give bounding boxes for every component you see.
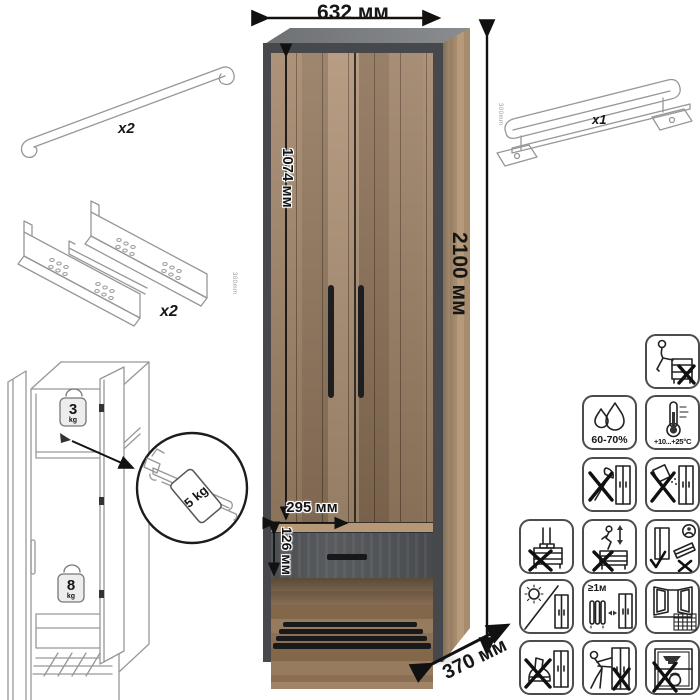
icon-heat-distance: ≥1м bbox=[582, 579, 637, 634]
icon-humidity: 60-70% bbox=[582, 395, 637, 450]
open-niche bbox=[271, 578, 433, 689]
right-door-handle bbox=[358, 285, 364, 398]
dim-inner-width-label: 295 мм bbox=[272, 499, 352, 516]
heat-distance-label: ≥1м bbox=[588, 583, 606, 594]
icon-assemble-upright bbox=[645, 519, 700, 574]
dim-height-label: 2100 мм bbox=[447, 232, 471, 316]
icon-no-sitting bbox=[645, 334, 700, 389]
drawer-load-unit: kg bbox=[58, 593, 84, 600]
shoe-rack-bar bbox=[279, 629, 423, 634]
wardrobe-side-panel bbox=[443, 28, 470, 662]
door-gap-line bbox=[354, 53, 356, 522]
dim-drawer-height-label: 126 мм bbox=[279, 527, 295, 575]
left-door-handle bbox=[328, 285, 334, 398]
shelf-load-value: 3 bbox=[60, 401, 86, 418]
icon-temperature: +10...+25°C bbox=[645, 395, 700, 450]
wireframe-wardrobe-sketch bbox=[8, 362, 247, 700]
icon-no-standing bbox=[519, 519, 574, 574]
temperature-label: +10...+25°C bbox=[647, 437, 698, 446]
humidity-label: 60-70% bbox=[584, 434, 635, 446]
drawer-slides-sketch bbox=[18, 201, 207, 326]
dim-width-label: 632 мм bbox=[278, 1, 428, 25]
slides-qty-label: x2 bbox=[160, 303, 178, 321]
furniture-dimension-diagram: 632 мм 2100 мм 1074 мм 295 мм 126 мм 370… bbox=[0, 0, 700, 700]
slides-size-label: 300mm bbox=[231, 272, 237, 295]
drawer-top-ledge bbox=[271, 522, 433, 532]
shoe-rack-bar bbox=[283, 622, 417, 627]
icon-no-heavy-objects bbox=[645, 640, 700, 695]
niche-floor bbox=[271, 682, 433, 689]
shoe-rack-bar bbox=[276, 636, 427, 641]
icon-no-moving-assembled bbox=[582, 640, 637, 695]
drawer-load-value: 8 bbox=[58, 577, 84, 594]
icon-no-direct-sunlight bbox=[519, 579, 574, 634]
icon-no-kicking bbox=[519, 640, 574, 695]
handle-rod-sketch bbox=[21, 67, 234, 157]
wardrobe-doors bbox=[271, 53, 433, 522]
icon-no-sharp-tools bbox=[582, 457, 637, 512]
rail-qty-label: x1 bbox=[592, 112, 606, 127]
rail-size-label: 300mm bbox=[497, 103, 503, 126]
shoe-rack-bar bbox=[273, 643, 431, 649]
handle-qty-label: x2 bbox=[118, 120, 135, 137]
shelf-load-unit: kg bbox=[60, 417, 86, 424]
icon-ventilate-window bbox=[645, 579, 700, 634]
icon-no-spilling bbox=[645, 457, 700, 512]
rail-load-tag: 5 kg bbox=[168, 471, 224, 521]
dim-door-height-label: 1074 мм bbox=[279, 148, 296, 208]
drawer-handle bbox=[327, 554, 367, 560]
icon-no-climbing bbox=[582, 519, 637, 574]
